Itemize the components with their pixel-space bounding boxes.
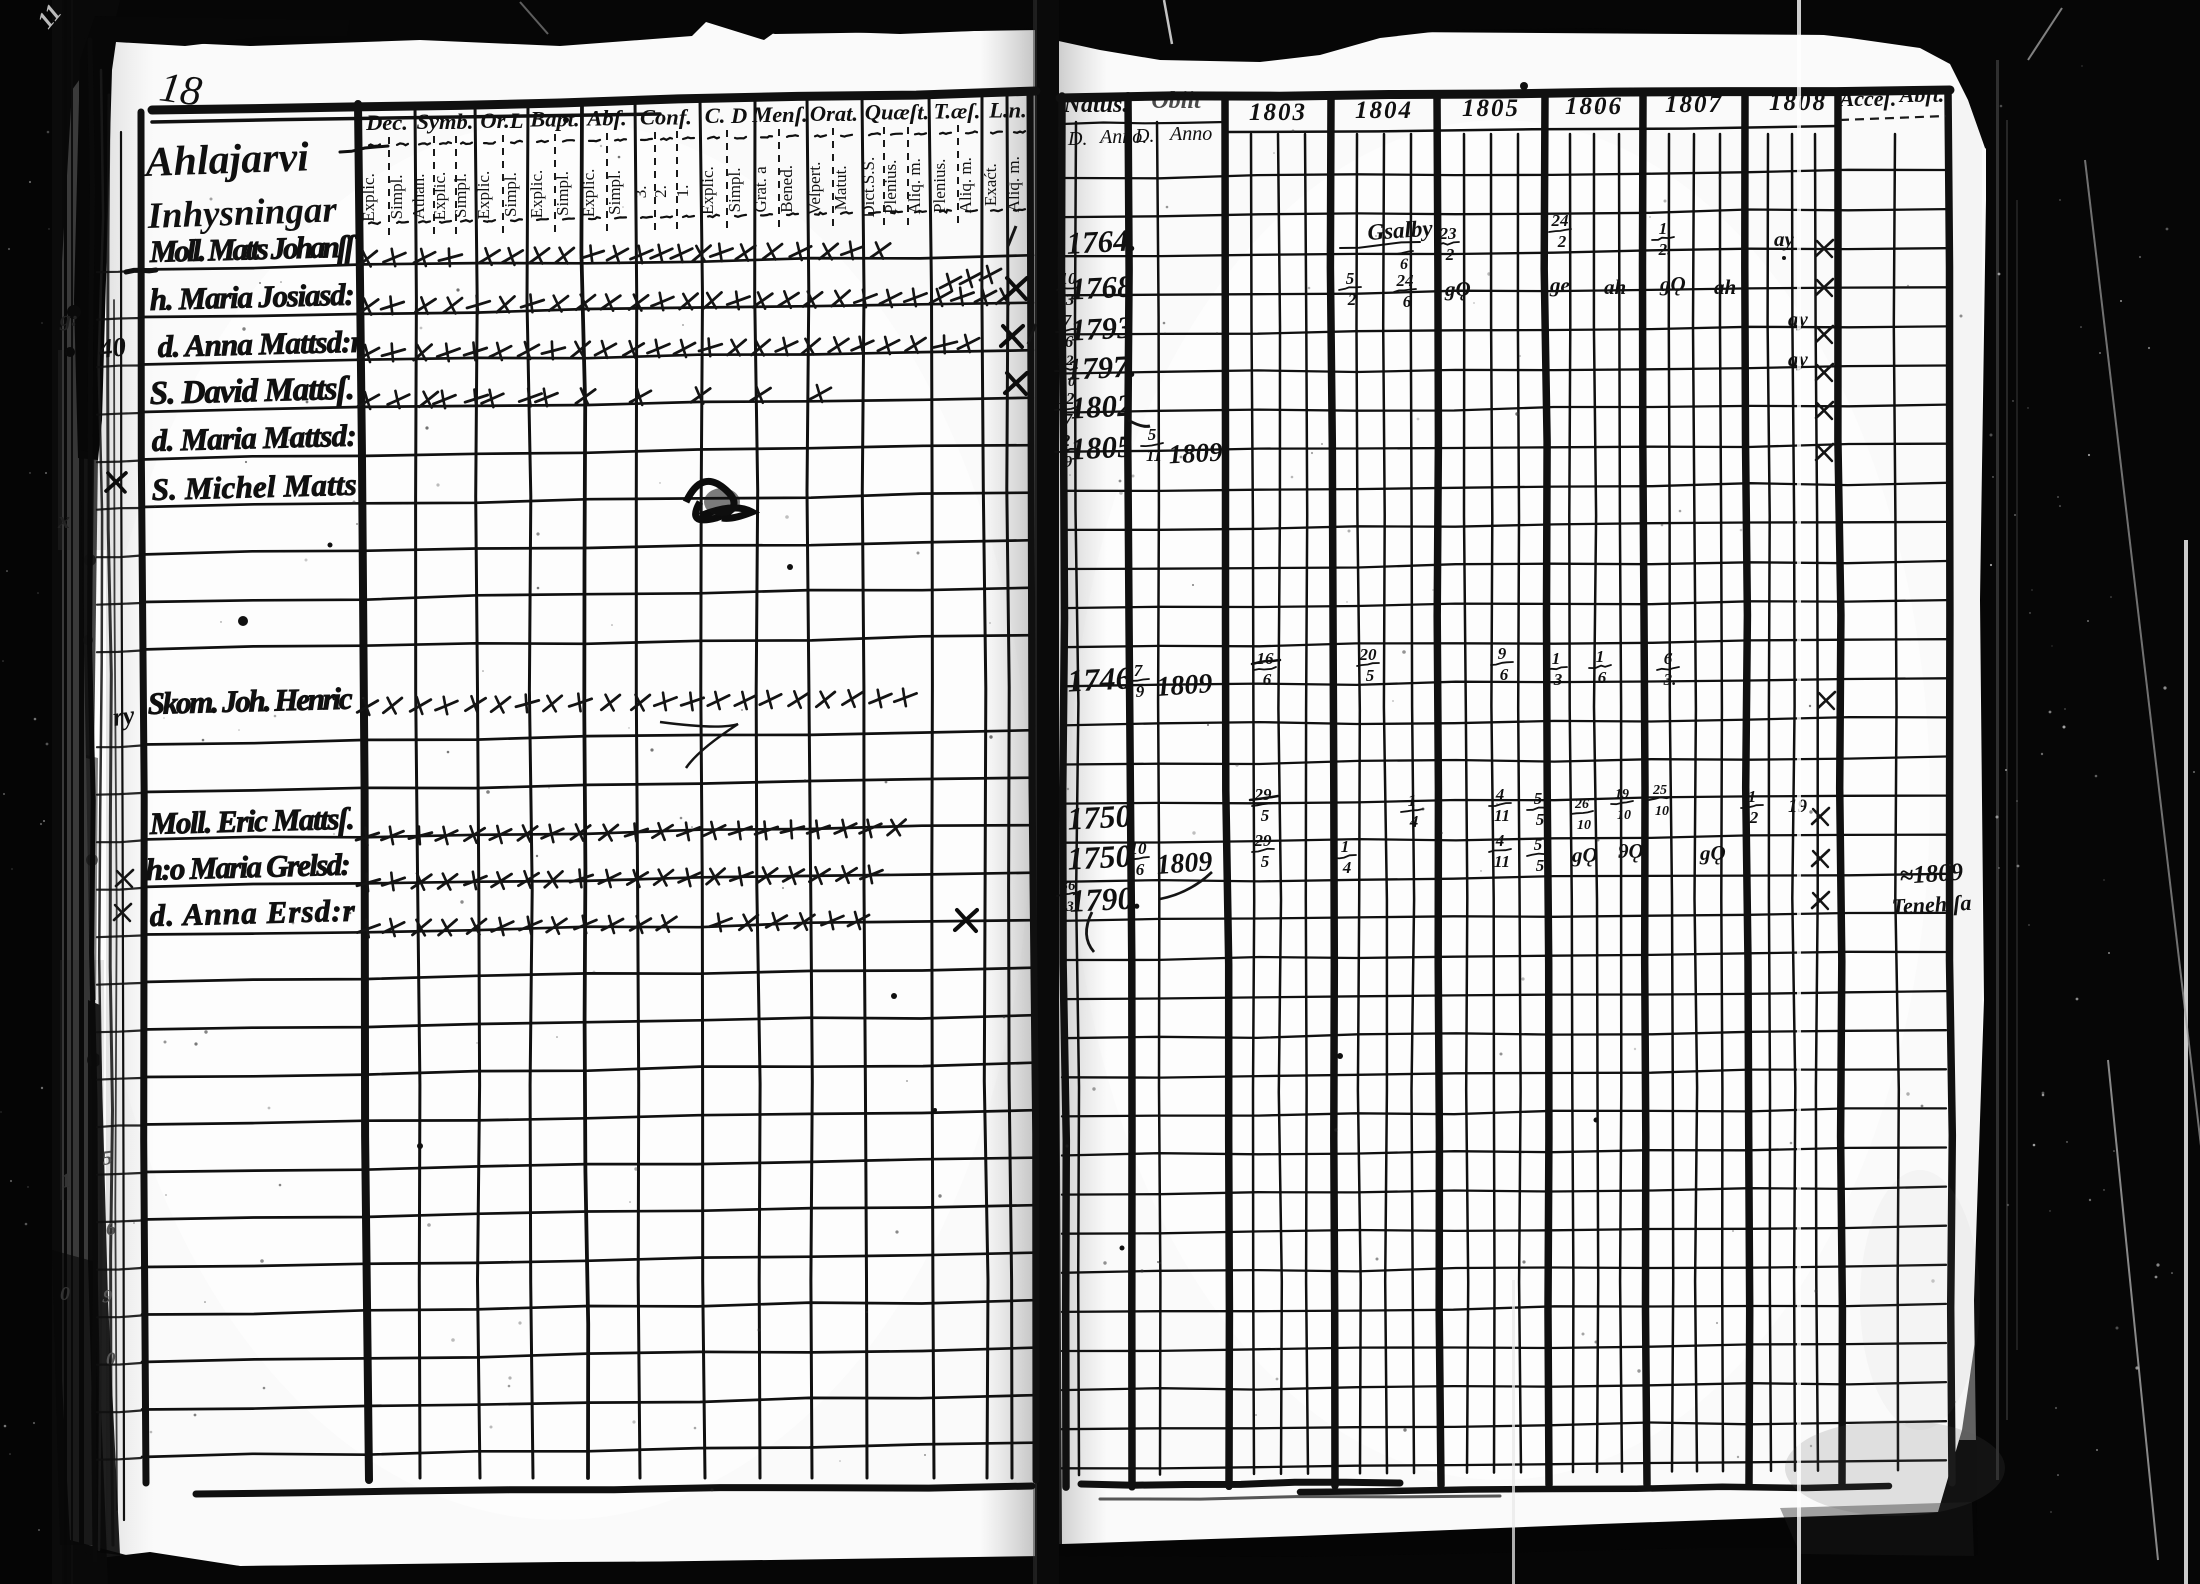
svg-text:h:o Maria Grelsd:: h:o Maria Grelsd: bbox=[145, 847, 351, 887]
svg-text:Aliq. m.: Aliq. m. bbox=[1004, 156, 1023, 212]
svg-text:1806: 1806 bbox=[1565, 93, 1623, 120]
svg-text:3: 3 bbox=[1553, 670, 1563, 689]
svg-text:C. D: C. D bbox=[705, 103, 748, 128]
svg-text:2: 2 bbox=[1557, 232, 1567, 251]
svg-text:6: 6 bbox=[1500, 665, 1509, 684]
svg-text:Explic.: Explic. bbox=[474, 171, 493, 220]
svg-text:1746: 1746 bbox=[1067, 659, 1133, 698]
svg-text:Bened.: Bened. bbox=[777, 165, 796, 213]
svg-text:1807: 1807 bbox=[1665, 91, 1723, 118]
svg-text:Gsalby: Gsalby bbox=[1367, 215, 1435, 245]
svg-text:d. Anna Ersd:r: d. Anna Ersd:r bbox=[149, 893, 356, 933]
svg-text:1: 1 bbox=[1748, 787, 1757, 806]
svg-text:Skom. Joh. Henric: Skom. Joh. Henric bbox=[147, 681, 353, 721]
svg-text:1802: 1802 bbox=[1070, 387, 1134, 425]
svg-text:3: 3 bbox=[1065, 290, 1075, 309]
svg-text:Moll. Eric Mattsſ.: Moll. Eric Mattsſ. bbox=[148, 801, 355, 841]
svg-text:20: 20 bbox=[1359, 645, 1378, 664]
svg-text:5: 5 bbox=[1536, 856, 1545, 875]
svg-text:1805: 1805 bbox=[1070, 428, 1134, 466]
svg-text:9: 9 bbox=[1136, 682, 1145, 701]
svg-text:22: 22 bbox=[1058, 353, 1075, 369]
svg-text:5: 5 bbox=[1534, 835, 1543, 854]
svg-text:Ahlajarvi: Ahlajarvi bbox=[142, 134, 310, 186]
svg-text:Anno: Anno bbox=[1168, 123, 1212, 145]
svg-text:Moll. Matts Johanſſ: Moll. Matts Johanſſ bbox=[148, 229, 358, 269]
svg-text:x: x bbox=[57, 508, 70, 534]
svg-text:4: 4 bbox=[1495, 831, 1505, 850]
svg-text:10: 10 bbox=[1617, 808, 1631, 823]
svg-text:1793: 1793 bbox=[1070, 309, 1134, 347]
svg-text:2.: 2. bbox=[1658, 240, 1672, 259]
svg-text:Simpl.: Simpl. bbox=[553, 171, 572, 216]
svg-text:Conf.: Conf. bbox=[640, 104, 692, 129]
svg-text:6: 6 bbox=[1664, 649, 1673, 668]
svg-text:h. Maria Josiasd:: h. Maria Josiasd: bbox=[149, 277, 355, 317]
svg-text:g:: g: bbox=[59, 306, 78, 331]
svg-text:5: 5 bbox=[1261, 806, 1270, 825]
svg-text:Orat.: Orat. bbox=[810, 101, 858, 126]
svg-text:3.: 3. bbox=[1663, 670, 1677, 689]
svg-text:6: 6 bbox=[1065, 332, 1074, 351]
svg-text:Veſpert.: Veſpert. bbox=[805, 162, 824, 215]
svg-text:ge: ge bbox=[1549, 273, 1570, 297]
svg-text:gǪ: gǪ bbox=[1571, 843, 1598, 867]
svg-text:11: 11 bbox=[1494, 852, 1510, 871]
svg-text:5: 5 bbox=[1261, 852, 1270, 871]
svg-text:Dec.: Dec. bbox=[365, 110, 408, 135]
svg-text:9Ǫ: 9Ǫ bbox=[1618, 839, 1644, 863]
svg-text:Abſt.: Abſt. bbox=[1898, 82, 1945, 107]
svg-text:gǪ: gǪ bbox=[1659, 272, 1686, 296]
svg-text:9: 9 bbox=[1498, 644, 1507, 663]
svg-text:Plenius.: Plenius. bbox=[881, 160, 900, 214]
svg-text:29: 29 bbox=[1254, 785, 1273, 804]
svg-text:Tenehlſa: Tenehlſa bbox=[1891, 890, 1972, 919]
svg-text:16: 16 bbox=[1257, 649, 1275, 668]
svg-text:1804: 1804 bbox=[1355, 97, 1413, 124]
svg-text:4: 4 bbox=[1409, 812, 1419, 831]
svg-text:Explic.: Explic. bbox=[430, 172, 449, 221]
svg-text:Aliq. m.: Aliq. m. bbox=[905, 158, 924, 214]
svg-text:Grat. a: Grat. a bbox=[751, 166, 770, 213]
svg-text:Simpl.: Simpl. bbox=[605, 170, 624, 215]
svg-text:5: 5 bbox=[1534, 789, 1543, 808]
svg-text:1: 1 bbox=[1408, 791, 1417, 810]
svg-text:10: 10 bbox=[1577, 818, 1591, 833]
svg-text:Dict.S.S.: Dict.S.S. bbox=[859, 157, 878, 218]
svg-text:11: 11 bbox=[1146, 446, 1162, 465]
svg-text:D.: D. bbox=[1067, 128, 1087, 150]
svg-text:1809: 1809 bbox=[1155, 846, 1213, 881]
svg-text:5: 5 bbox=[1346, 269, 1355, 288]
svg-text:d. Anna Mattsd:r: d. Anna Mattsd:r bbox=[157, 324, 364, 364]
svg-text:2: 2 bbox=[1347, 290, 1357, 309]
svg-text:1: 1 bbox=[1341, 837, 1350, 856]
svg-text:6: 6 bbox=[1598, 668, 1607, 687]
svg-text:ah: ah bbox=[1604, 275, 1626, 299]
svg-text:Plenius.: Plenius. bbox=[930, 159, 949, 213]
svg-text:Aliq. m.: Aliq. m. bbox=[956, 157, 975, 213]
svg-text:24: 24 bbox=[1551, 211, 1569, 230]
svg-text:Bapt.: Bapt. bbox=[529, 107, 579, 132]
svg-text:12: 12 bbox=[1058, 389, 1076, 408]
svg-text:S. Michel Matts: S. Michel Matts bbox=[151, 467, 357, 507]
svg-text:D.: D. bbox=[1134, 125, 1154, 147]
svg-text:Abſ.: Abſ. bbox=[585, 106, 626, 131]
svg-text:1803: 1803 bbox=[1249, 99, 1307, 126]
svg-text:1805: 1805 bbox=[1462, 95, 1520, 122]
svg-text:Explic.: Explic. bbox=[359, 173, 378, 222]
svg-text:4: 4 bbox=[1342, 858, 1352, 877]
svg-text:Or.L: Or.L bbox=[480, 108, 523, 133]
svg-text:4: 4 bbox=[1495, 785, 1505, 804]
svg-text:2: 2 bbox=[1749, 808, 1759, 827]
svg-text:1790.: 1790. bbox=[1069, 879, 1143, 919]
svg-text:Quæſt.: Quæſt. bbox=[865, 100, 929, 125]
svg-text:1: 1 bbox=[1552, 649, 1561, 668]
svg-text:2.: 2. bbox=[651, 185, 670, 198]
svg-text:1: 1 bbox=[1659, 219, 1668, 238]
svg-text:24: 24 bbox=[1396, 271, 1414, 290]
svg-text:Acceſ.: Acceſ. bbox=[1838, 86, 1897, 111]
svg-text:Simpl.: Simpl. bbox=[387, 174, 406, 219]
svg-text:23: 23 bbox=[1439, 224, 1458, 243]
svg-text:1750: 1750 bbox=[1067, 837, 1133, 876]
svg-text:0: 0 bbox=[106, 1349, 116, 1370]
svg-text:1809: 1809 bbox=[1155, 668, 1213, 703]
svg-text:ah: ah bbox=[1714, 275, 1736, 299]
svg-text:Explic.: Explic. bbox=[579, 169, 598, 218]
svg-text:Explic.: Explic. bbox=[527, 170, 546, 219]
svg-text:9: 9 bbox=[1064, 452, 1073, 471]
svg-text:40: 40 bbox=[96, 331, 127, 364]
svg-text:ry: ry bbox=[111, 700, 137, 732]
svg-text:1764.: 1764. bbox=[1066, 222, 1137, 261]
svg-text:10: 10 bbox=[1061, 374, 1077, 390]
svg-text:Simpl.: Simpl. bbox=[451, 173, 470, 218]
svg-text:10: 10 bbox=[1130, 839, 1148, 858]
svg-text:gǪ: gǪ bbox=[1699, 841, 1726, 865]
svg-text:10: 10 bbox=[1655, 804, 1669, 819]
svg-text:25: 25 bbox=[1652, 783, 1667, 798]
svg-text:ay: ay bbox=[1774, 227, 1795, 251]
svg-text:29: 29 bbox=[1254, 831, 1273, 850]
svg-text:0: 0 bbox=[60, 1283, 70, 1305]
svg-text:T.æſ.: T.æſ. bbox=[934, 98, 981, 123]
svg-text:≈1809: ≈1809 bbox=[1899, 859, 1965, 890]
svg-text:2: 2 bbox=[1445, 245, 1455, 264]
svg-text:10: 10 bbox=[1060, 269, 1078, 288]
svg-text:Simpl.: Simpl. bbox=[501, 172, 520, 217]
svg-text:Simpl.: Simpl. bbox=[725, 168, 744, 213]
svg-text:3.: 3. bbox=[631, 185, 650, 198]
svg-text:11: 11 bbox=[1494, 806, 1510, 825]
svg-text:L.n.: L.n. bbox=[988, 97, 1027, 122]
svg-text:6: 6 bbox=[1403, 292, 1412, 311]
svg-text:6: 6 bbox=[1136, 860, 1145, 879]
svg-text:5: 5 bbox=[1366, 666, 1375, 685]
svg-text:26: 26 bbox=[1574, 797, 1589, 812]
svg-text:5: 5 bbox=[1148, 425, 1157, 444]
svg-text:Menſ.: Menſ. bbox=[751, 102, 808, 127]
svg-text:Exaćt.: Exaćt. bbox=[981, 163, 1000, 206]
svg-text:5: 5 bbox=[1536, 810, 1545, 829]
svg-text:Explic.: Explic. bbox=[698, 166, 717, 215]
svg-text:d. Maria Mattsd:: d. Maria Mattsd: bbox=[151, 418, 357, 458]
svg-text:1.: 1. bbox=[673, 185, 692, 198]
svg-text:2: 2 bbox=[1061, 431, 1071, 450]
svg-text:1: 1 bbox=[1596, 647, 1605, 666]
svg-text:1750: 1750 bbox=[1067, 797, 1133, 836]
svg-text:S. David Mattsſ.: S. David Mattsſ. bbox=[149, 371, 355, 412]
svg-text:Symb.: Symb. bbox=[417, 109, 474, 134]
svg-text:gǪ: gǪ bbox=[1444, 277, 1471, 301]
svg-text:1809: 1809 bbox=[1168, 437, 1224, 470]
svg-text:Natus.: Natus. bbox=[1063, 92, 1129, 118]
svg-text:Athan.: Athan. bbox=[409, 174, 428, 220]
svg-text:6: 6 bbox=[1263, 670, 1272, 689]
svg-text:Matut.: Matut. bbox=[831, 165, 850, 210]
svg-text:19: 19 bbox=[1615, 787, 1629, 802]
svg-text:Obiit: Obiit bbox=[1151, 88, 1202, 114]
